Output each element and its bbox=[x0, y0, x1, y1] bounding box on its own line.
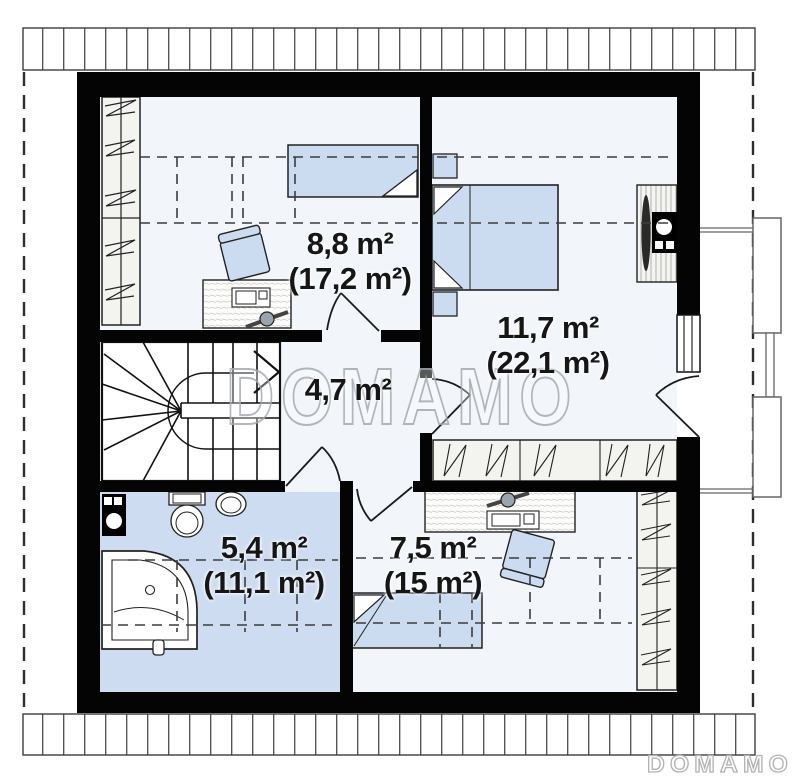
railing-panel bbox=[753, 397, 781, 497]
bath-tap bbox=[153, 640, 164, 655]
railing-panel bbox=[753, 218, 781, 333]
wall-exterior-left bbox=[77, 72, 100, 713]
area-net: 7,5 m² bbox=[390, 530, 477, 565]
bed-single-upper bbox=[288, 145, 418, 197]
area-net: 8,8 m² bbox=[307, 226, 394, 261]
wall-room1-hall bbox=[100, 330, 322, 342]
wall-bedroom-room5 bbox=[413, 481, 700, 492]
room-area-label-bedroom-upper-left: 8,8 m² (17,2 m²) bbox=[250, 226, 450, 296]
area-net: 11,7 m² bbox=[497, 310, 599, 345]
roof-eave-strip-bottom bbox=[23, 714, 755, 755]
area-gross: (22,1 m²) bbox=[448, 345, 648, 380]
room-area-label-hall: 4,7 m² bbox=[288, 372, 408, 407]
chimney-bathroom bbox=[102, 494, 126, 536]
attic-floor-plan: DOMAMO DOMAMO 8,8 m² (17,2 m²) 11,7 m² (… bbox=[0, 0, 800, 777]
chimney-bedroom bbox=[652, 212, 677, 253]
wardrobe-bedroom-right bbox=[433, 440, 677, 481]
room-area-label-bedroom-right: 11,7 m² (22,1 m²) bbox=[448, 310, 648, 380]
bed-single-lower bbox=[352, 593, 482, 648]
wall-exterior-right-lower bbox=[677, 437, 700, 692]
wall-exterior-right-upper bbox=[677, 72, 700, 315]
wall-exterior-bottom bbox=[77, 692, 700, 713]
wall-hall-bathroom bbox=[100, 481, 285, 492]
area-net: 5,4 m² bbox=[221, 530, 308, 565]
railing-joint bbox=[766, 333, 774, 397]
wall-exterior-top bbox=[77, 72, 700, 97]
area-net: 4,7 m² bbox=[305, 372, 392, 407]
roof-eave-strip-top bbox=[23, 28, 755, 70]
area-gross: (15 m²) bbox=[333, 565, 533, 600]
wardrobe-lower-right bbox=[637, 488, 677, 690]
window-right-wall bbox=[677, 315, 700, 372]
balcony-right bbox=[700, 218, 781, 497]
desk-lower-right bbox=[425, 490, 575, 532]
area-gross: (17,2 m²) bbox=[250, 261, 450, 296]
room-area-label-bedroom-lower-right: 7,5 m² (15 m²) bbox=[333, 530, 533, 600]
wardrobe-upper-left bbox=[102, 97, 140, 325]
tv bbox=[642, 195, 651, 271]
watermark-corner: DOMAMO bbox=[647, 751, 793, 777]
